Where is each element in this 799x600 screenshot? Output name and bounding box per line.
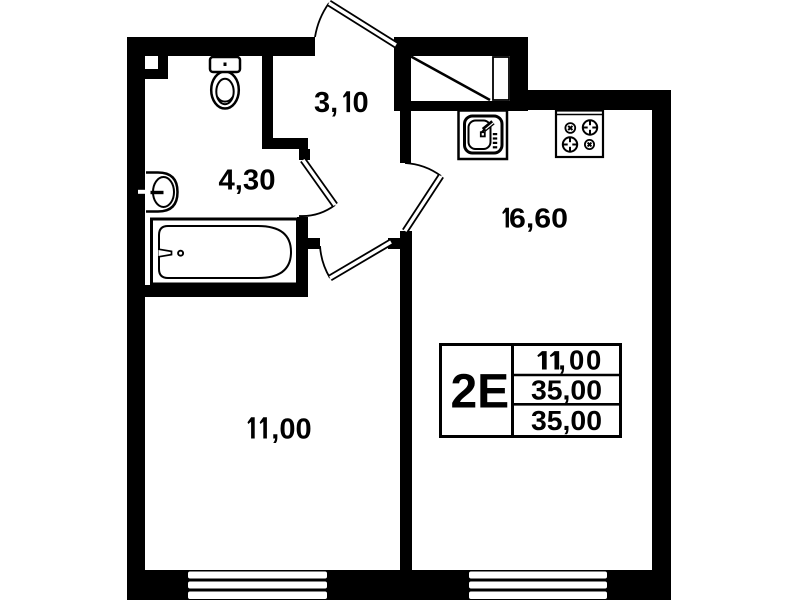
svg-text:35,00: 35,00 <box>531 375 602 406</box>
svg-text:35,00: 35,00 <box>531 405 602 436</box>
svg-text:0: 0 <box>353 87 369 119</box>
svg-text:,00: ,00 <box>558 345 601 376</box>
svg-text:6,60: 6,60 <box>509 203 568 234</box>
svg-text:,00: ,00 <box>271 414 311 446</box>
svg-text:2Е: 2Е <box>450 366 509 419</box>
svg-text:4,30: 4,30 <box>219 164 276 196</box>
svg-text:3,: 3, <box>314 87 338 119</box>
